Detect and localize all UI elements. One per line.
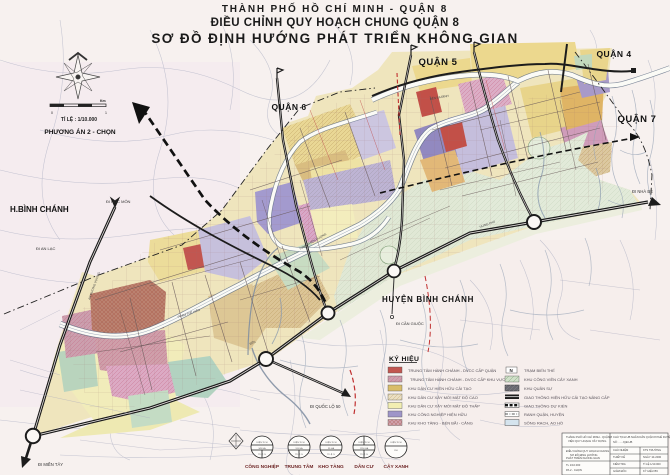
svg-text:ĐI AN LẠC: ĐI AN LẠC (36, 246, 55, 251)
svg-text:KHU DÂN CƯ XÂY MỚI MẬT ĐỘ THẤP: KHU DÂN CƯ XÂY MỚI MẬT ĐỘ THẤP (408, 404, 480, 409)
svg-text:KHU CÔNG NGHIỆP HIỆN HỮU: KHU CÔNG NGHIỆP HIỆN HỮU (408, 412, 467, 417)
svg-text:TL 1/10.000: TL 1/10.000 (566, 463, 581, 467)
svg-text:PA 2 - CHỌN: PA 2 - CHỌN (566, 468, 582, 472)
svg-text:DÂN CƯ: DÂN CƯ (354, 463, 373, 470)
svg-text:1: 1 (105, 111, 107, 115)
svg-text:TỈ LỆ %: TỈ LỆ % (327, 453, 335, 456)
svg-text:TRUNG TÂM HÀNH CHÁNH - DVCC CẤ: TRUNG TÂM HÀNH CHÁNH - DVCC CẤP QUẬN (408, 368, 496, 373)
svg-text:1250 HA: 1250 HA (360, 447, 369, 450)
svg-text:GIAO THÔNG HIỆN HỮU CẢI TẠO NÂ: GIAO THÔNG HIỆN HỮU CẢI TẠO NÂNG CẤP (524, 395, 610, 400)
svg-text:DIỆN TÍCH: DIỆN TÍCH (294, 441, 305, 444)
svg-text:345 HA: 345 HA (258, 447, 266, 450)
svg-text:TỈ LỆ %: TỈ LỆ % (360, 453, 368, 456)
svg-text:THÀNH PHỐ HỒ CHÍ MINH - QUẬN 8: THÀNH PHỐ HỒ CHÍ MINH - QUẬN 8 (222, 1, 448, 15)
svg-text:TỈ LỆ : 1/10.000: TỈ LỆ : 1/10.000 (61, 115, 97, 123)
svg-text:KÝ HIỆU: KÝ HIỆU (389, 354, 419, 363)
svg-text:GIAO THÔNG DỰ KIẾN: GIAO THÔNG DỰ KIẾN (524, 404, 567, 409)
svg-text:KHU CÔNG VIÊN CÂY XANH: KHU CÔNG VIÊN CÂY XANH (524, 377, 578, 382)
svg-text:H.BÌNH CHÁNH: H.BÌNH CHÁNH (10, 205, 69, 214)
svg-text:QUẬN 4: QUẬN 4 (596, 48, 631, 59)
svg-text:ĐI HÓC MÔN: ĐI HÓC MÔN (106, 199, 131, 204)
svg-text:NGÀY 10-2000: NGÀY 10-2000 (643, 455, 662, 459)
svg-text:PHƯƠNG ÁN 2 - CHỌN: PHƯƠNG ÁN 2 - CHỌN (44, 127, 116, 136)
svg-text:KHO TÀNG: KHO TÀNG (318, 463, 344, 470)
svg-text:KHU DÂN CƯ XÂY MỚI MẬT ĐỘ CAO: KHU DÂN CƯ XÂY MỚI MẬT ĐỘ CAO (408, 395, 478, 400)
svg-text:ĐIỀU CHỈNH QUY HOẠCH CHUNG QUẬ: ĐIỀU CHỈNH QUY HOẠCH CHUNG QUẬN 8 (211, 16, 460, 29)
svg-text:KHU KHO TÀNG - BẾN BÃI - CẢNG: KHU KHO TÀNG - BẾN BÃI - CẢNG (408, 421, 473, 426)
svg-text:ĐI MIỀN TÂY: ĐI MIỀN TÂY (38, 462, 63, 467)
svg-text:95 HA: 95 HA (328, 447, 335, 450)
svg-text:Km: Km (100, 99, 106, 103)
svg-text:KHU DÂN CƯ HIỆN HỮU CẢI TẠO: KHU DÂN CƯ HIỆN HỮU CẢI TẠO (408, 386, 471, 391)
svg-text:SÔNG RẠCH, AO HỒ: SÔNG RẠCH, AO HỒ (524, 421, 563, 426)
svg-text:CÂY XANH: CÂY XANH (384, 463, 410, 470)
svg-text:TRUNG TÂM HÀNH CHÁNH - DVCC CẤ: TRUNG TÂM HÀNH CHÁNH - DVCC CẤP KHU VỰC (410, 377, 505, 382)
svg-text:TỈ LỆ %: TỈ LỆ % (295, 453, 303, 456)
svg-text:HUYỆN BÌNH CHÁNH: HUYỆN BÌNH CHÁNH (382, 295, 474, 304)
svg-text:DIỆN TÍCH: DIỆN TÍCH (391, 441, 402, 444)
svg-text:KHU QUÂN SỰ: KHU QUÂN SỰ (524, 386, 553, 391)
svg-text:ĐI QUỐC LỘ 50: ĐI QUỐC LỘ 50 (310, 404, 341, 409)
svg-text:SƠ ĐỒ ĐỊNH HƯỚNG PHÁT TRIỂN KH: SƠ ĐỒ ĐỊNH HƯỚNG PHÁT TRIỂN KHÔNG GIAN (151, 31, 518, 46)
svg-text:QUẬN 7: QUẬN 7 (618, 113, 657, 125)
svg-text:ĐI NHÀ BÈ: ĐI NHÀ BÈ (632, 189, 653, 194)
svg-text:DIỆN TÍCH: DIỆN TÍCH (326, 441, 337, 444)
svg-text:QUẬN 5: QUẬN 5 (419, 56, 458, 68)
svg-text:QUẬN 6: QUẬN 6 (271, 101, 306, 112)
svg-text:TỈ LỆ %: TỈ LỆ % (258, 453, 266, 456)
svg-text:0: 0 (51, 111, 53, 115)
svg-text:TRUNG TÂM: TRUNG TÂM (285, 463, 314, 470)
svg-text:N: N (510, 368, 513, 373)
svg-text:RANH QUẬN, HUYỆN: RANH QUẬN, HUYỆN (524, 412, 564, 417)
svg-text:ĐI CẦN GIUỘC: ĐI CẦN GIUỘC (396, 321, 424, 326)
svg-text:DIỆN TÍCH: DIỆN TÍCH (359, 441, 370, 444)
svg-text:DIỆN TÍCH: DIỆN TÍCH (257, 441, 268, 444)
svg-text:120 HA: 120 HA (295, 447, 303, 450)
svg-text:TRẠM BIẾN THẾ: TRẠM BIẾN THẾ (524, 368, 555, 373)
